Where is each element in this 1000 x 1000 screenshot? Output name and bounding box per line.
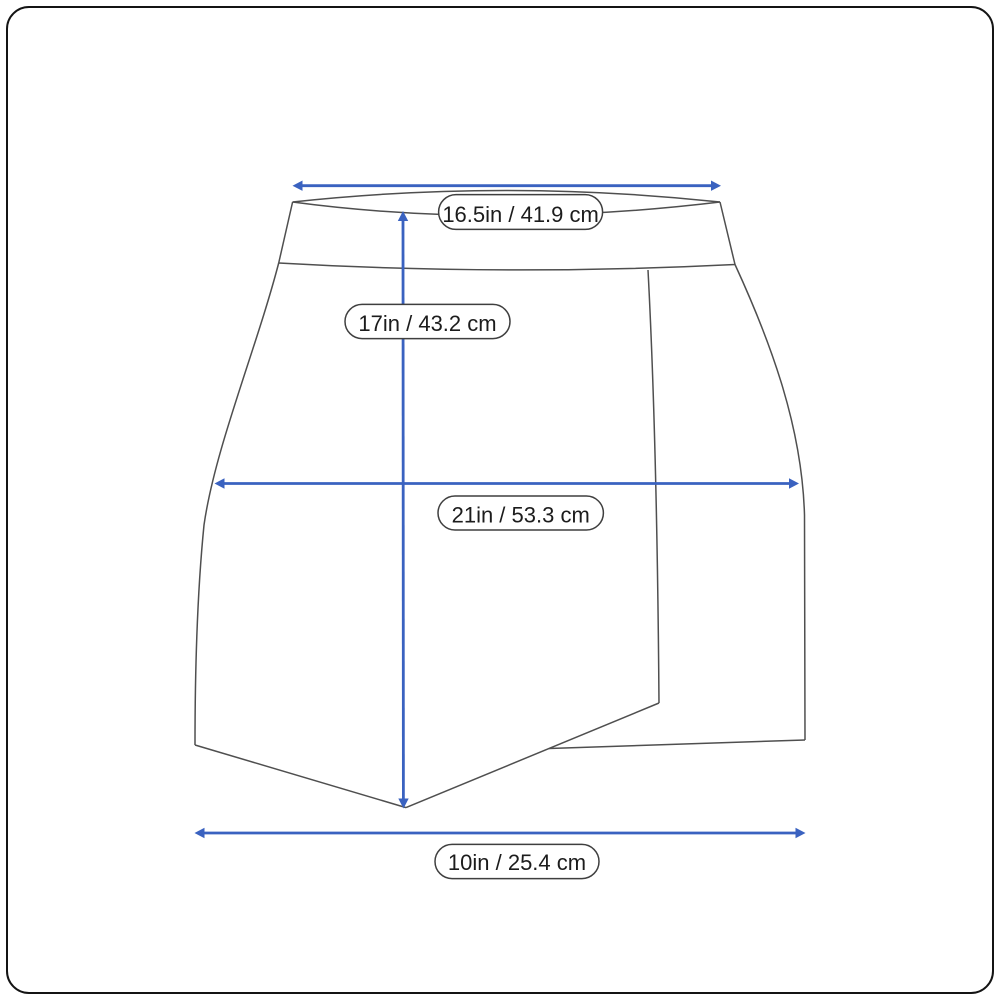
- svg-text:16.5in / 41.9 cm: 16.5in / 41.9 cm: [442, 202, 599, 227]
- svg-text:17in / 43.2 cm: 17in / 43.2 cm: [358, 311, 496, 336]
- svg-text:10in / 25.4 cm: 10in / 25.4 cm: [448, 850, 586, 875]
- svg-text:21in / 53.3 cm: 21in / 53.3 cm: [452, 503, 590, 528]
